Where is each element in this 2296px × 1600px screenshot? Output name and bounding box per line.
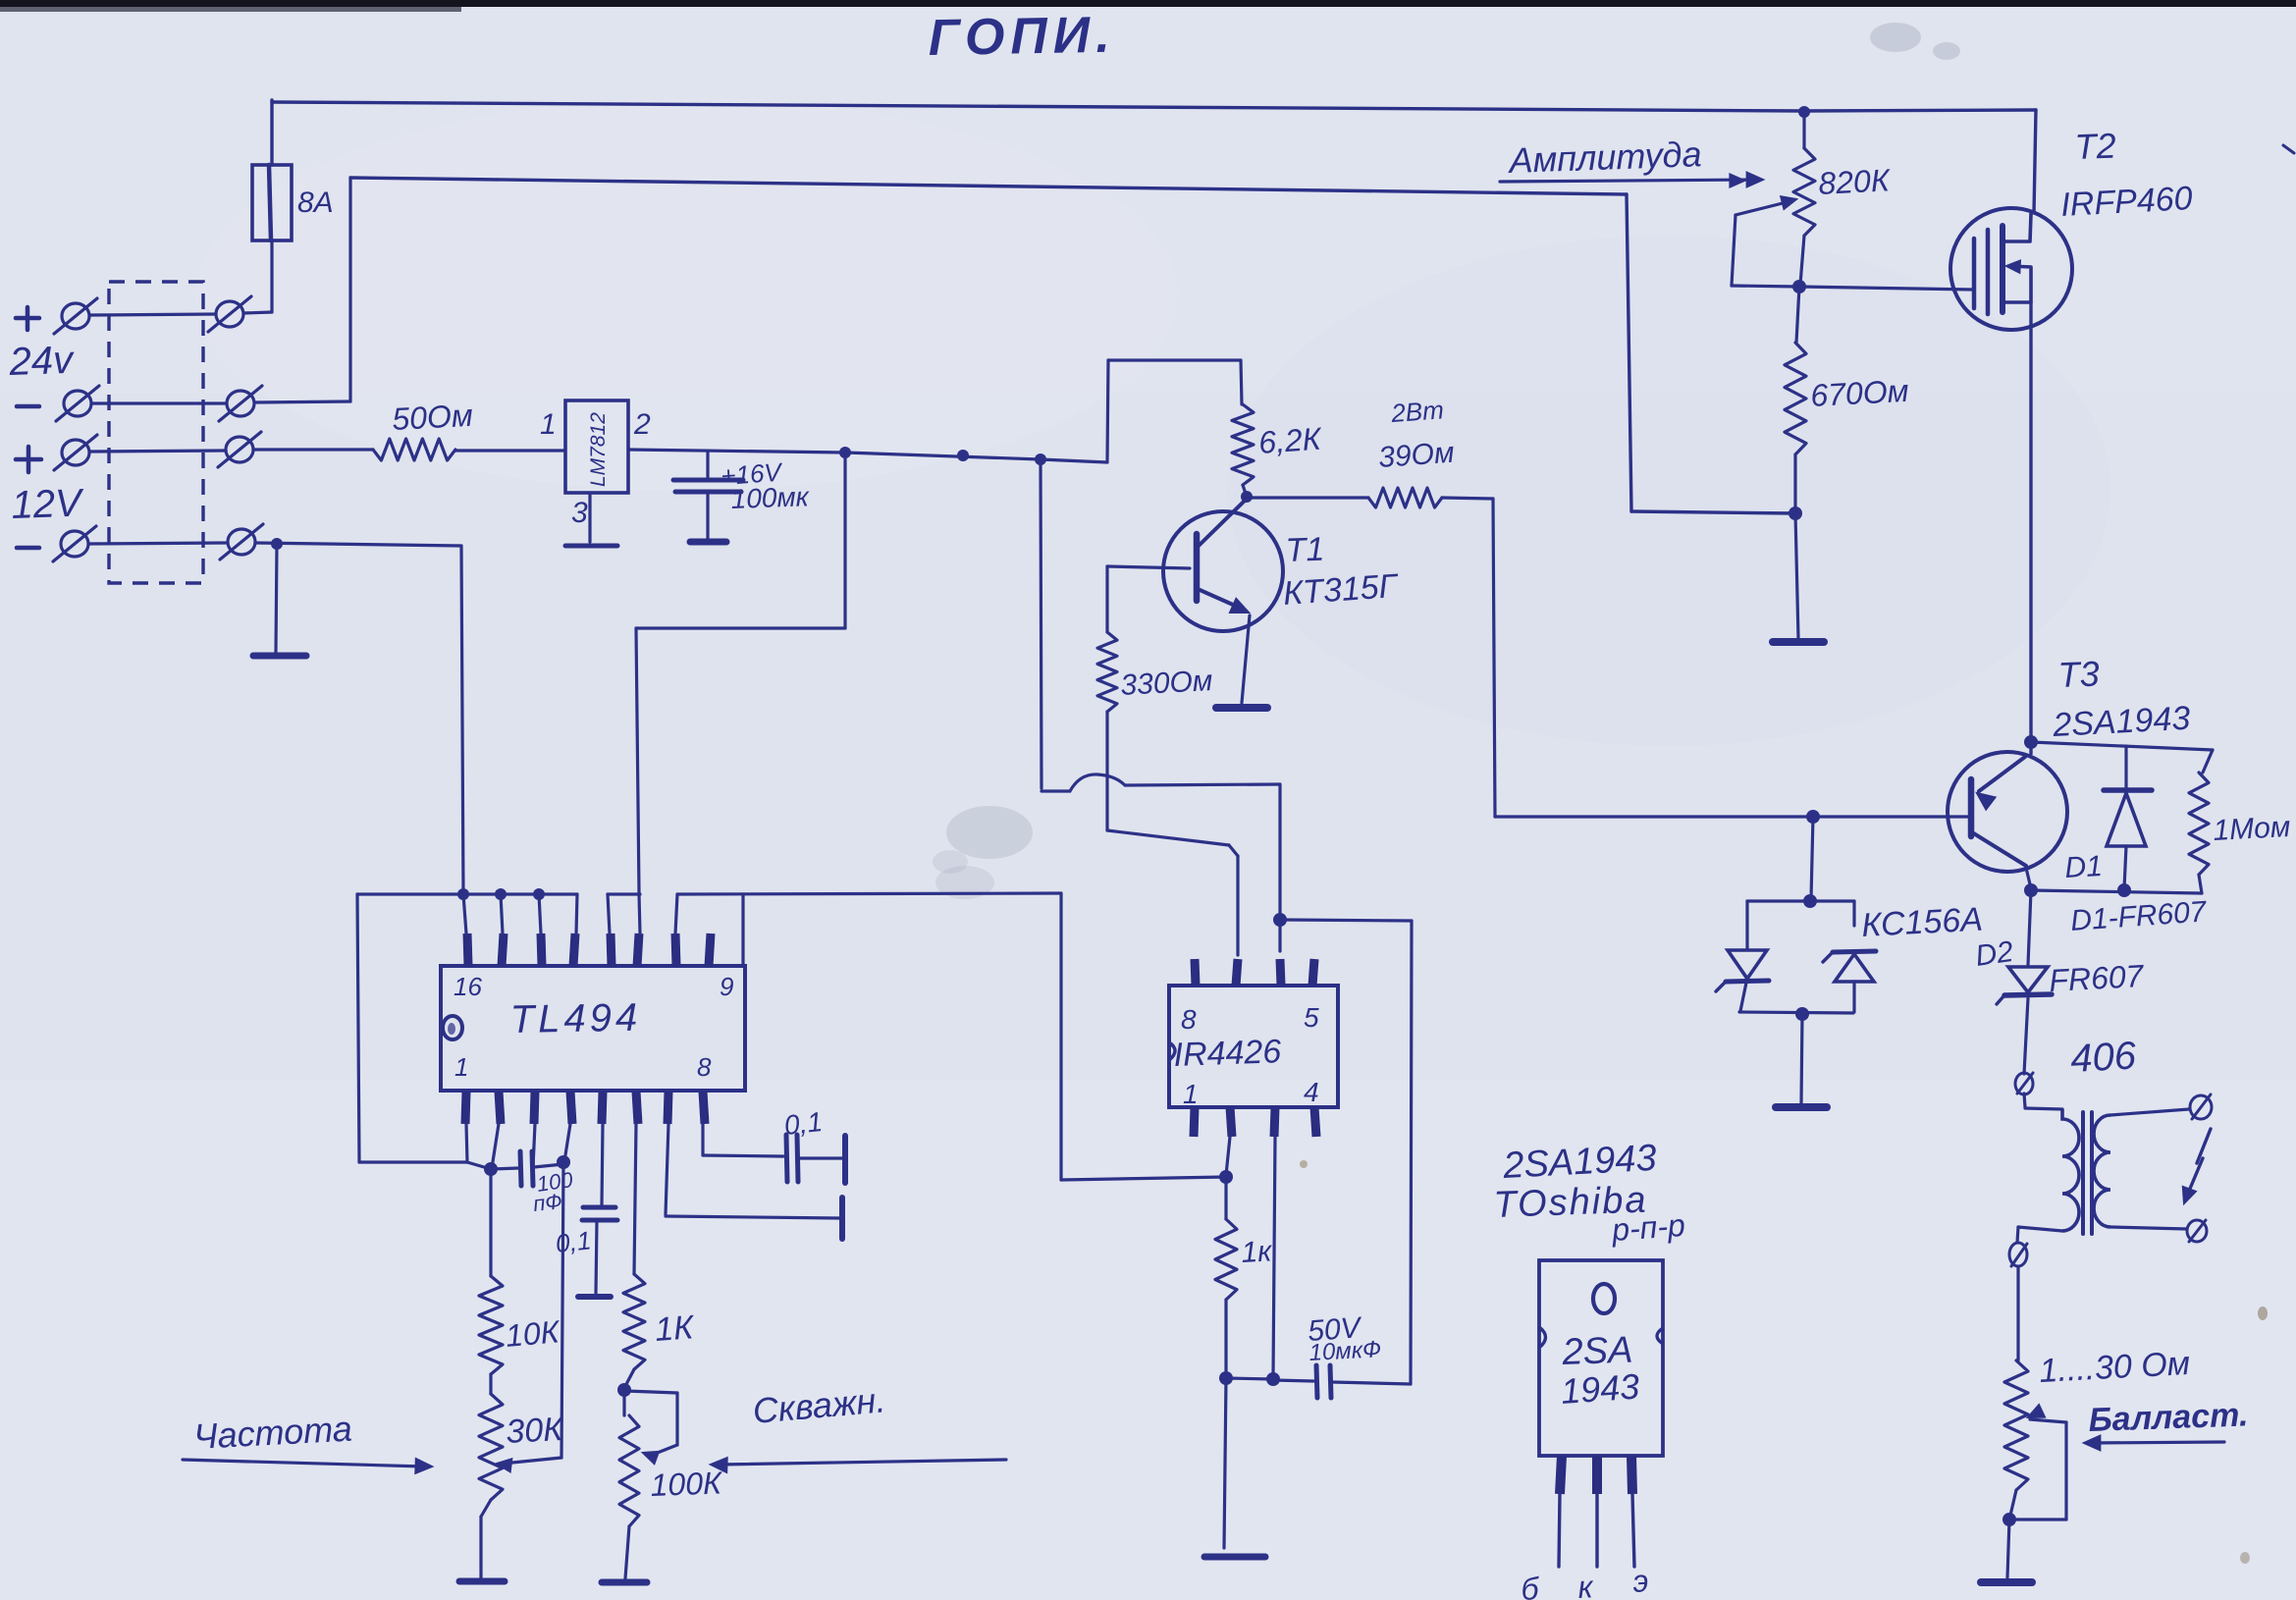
svg-text:16: 16 [454,972,482,1001]
svg-text:p-п-p: p-п-p [1610,1207,1686,1248]
svg-text:12V: 12V [11,481,85,527]
svg-text:Частота: Частота [192,1409,352,1457]
svg-text:TL494: TL494 [509,996,641,1041]
svg-text:8A: 8A [297,187,334,219]
svg-text:1К: 1К [654,1308,696,1349]
svg-text:IR4426: IR4426 [1173,1033,1282,1074]
svg-text:2SA1943: 2SA1943 [2051,700,2191,744]
svg-text:1: 1 [454,1052,468,1082]
svg-text:5: 5 [1304,1002,1319,1033]
svg-text:1....30 Ом: 1....30 Ом [2038,1345,2190,1390]
svg-text:4: 4 [1304,1077,1319,1107]
svg-text:1943: 1943 [1560,1365,1641,1411]
svg-text:LM7812: LM7812 [587,412,610,487]
svg-text:Балласт.: Балласт. [2088,1396,2249,1439]
svg-text:0,1: 0,1 [554,1225,592,1258]
svg-text:100мк: 100мк [730,481,811,514]
svg-text:D1: D1 [2064,850,2104,884]
svg-text:КС156А: КС156А [1860,901,1983,944]
svg-text:24v: 24v [8,339,76,384]
svg-text:3: 3 [571,497,588,529]
svg-text:б: б [1520,1571,1540,1600]
svg-text:30К: 30К [505,1411,565,1451]
svg-text:100К: 100К [650,1465,724,1503]
svg-text:1: 1 [1183,1079,1199,1109]
svg-text:2Вт: 2Вт [1389,395,1444,428]
svg-text:406: 406 [2069,1035,2138,1081]
svg-text:T3: T3 [2057,654,2100,695]
svg-text:670Ом: 670Ом [1809,373,1909,413]
svg-text:T1: T1 [1285,531,1325,569]
svg-text:пФ: пФ [532,1189,563,1216]
svg-text:2: 2 [633,408,651,441]
svg-text:39Ом: 39Ом [1377,437,1455,474]
svg-text:8: 8 [1181,1004,1197,1035]
svg-text:10мкФ: 10мкФ [1308,1336,1382,1366]
svg-text:T2: T2 [2074,126,2116,167]
svg-text:9: 9 [720,972,733,1001]
svg-text:FR607: FR607 [2048,958,2145,998]
svg-text:50Ом: 50Ом [391,398,473,437]
svg-text:0,1: 0,1 [782,1106,824,1141]
svg-text:1: 1 [540,408,557,441]
svg-text:820К: 820К [1817,162,1892,201]
svg-text:330Ом: 330Ом [1120,665,1214,702]
svg-text:8: 8 [697,1052,712,1082]
svg-text:D2: D2 [1973,935,2015,973]
svg-text:6,2К: 6,2К [1257,421,1324,460]
svg-text:ГОПИ.: ГОПИ. [928,7,1116,67]
svg-text:1к: 1к [1241,1235,1274,1269]
svg-text:Амплитуда: Амплитуда [1507,133,1702,181]
svg-text:э: э [1631,1563,1649,1599]
svg-text:1Мом: 1Мом [2213,811,2292,847]
svg-text:IRFP460: IRFP460 [2059,180,2193,224]
svg-text:10К: 10К [504,1313,562,1354]
